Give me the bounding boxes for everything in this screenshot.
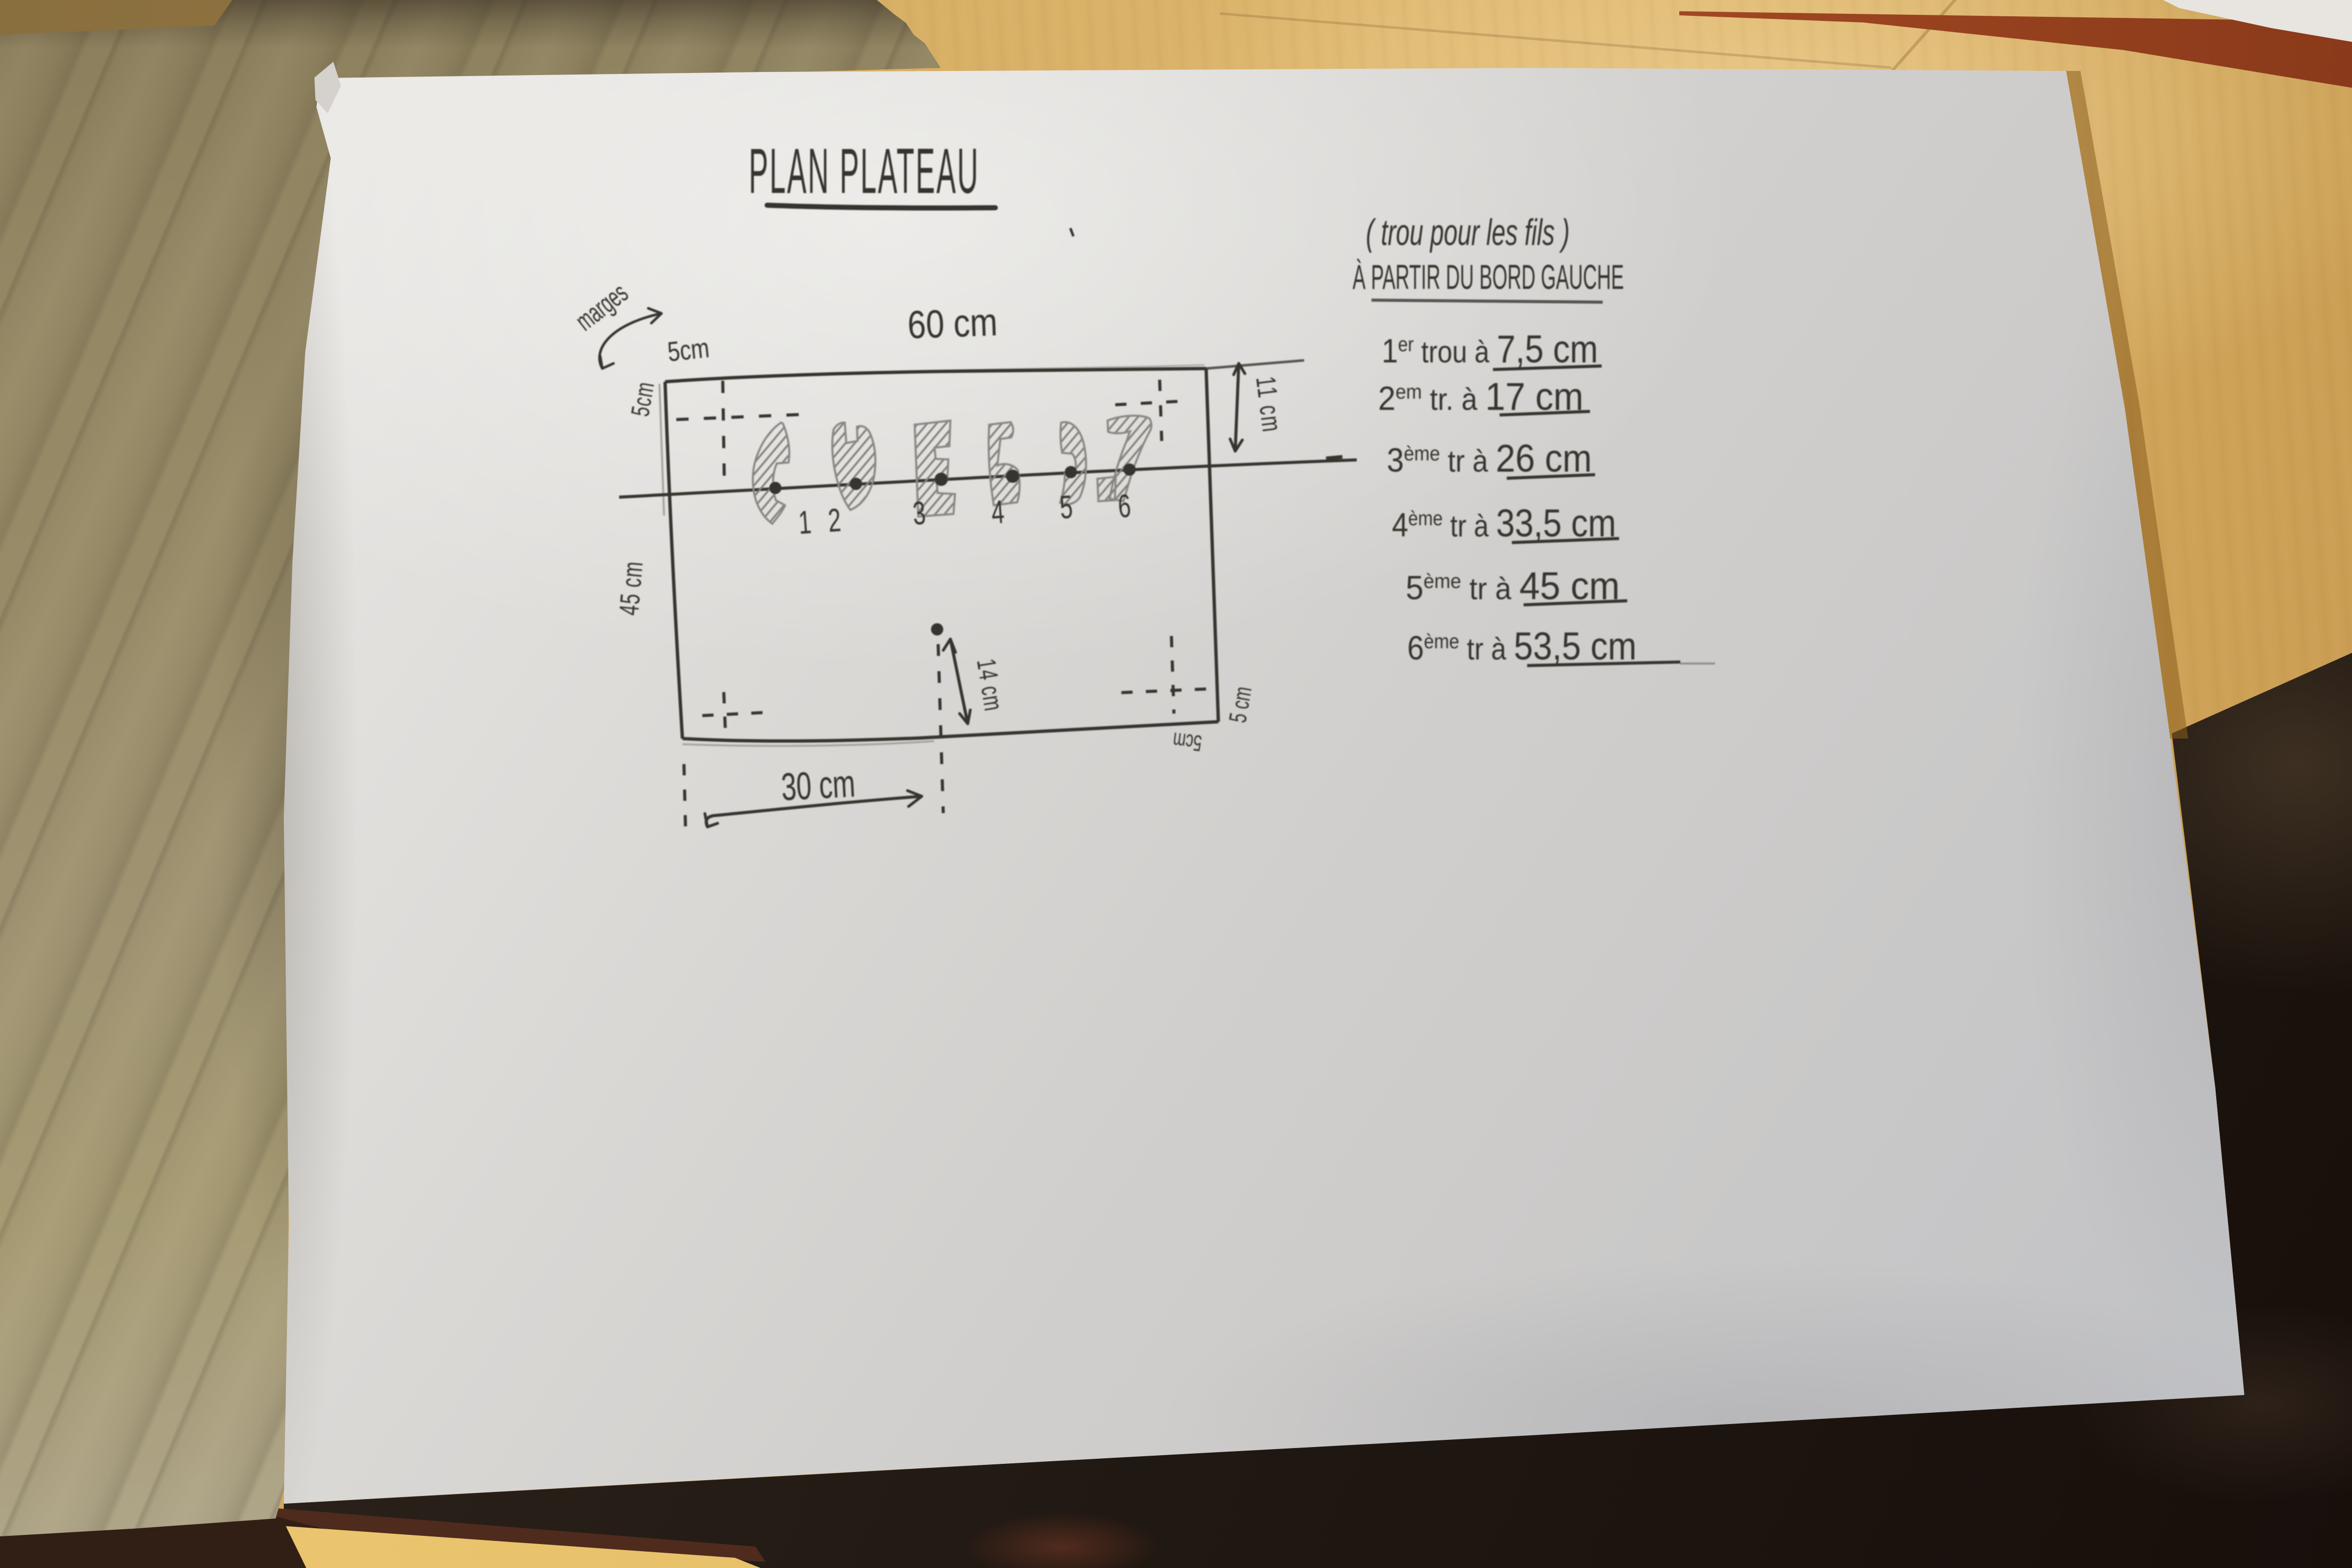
- svg-text:3: 3: [912, 494, 927, 531]
- svg-text:PLAN PLATEAU: PLAN PLATEAU: [749, 135, 979, 207]
- svg-text:5cm: 5cm: [666, 333, 710, 367]
- svg-text:2: 2: [827, 501, 842, 538]
- svg-text:( trou pour les fils ): ( trou pour les fils ): [1366, 212, 1570, 253]
- svg-text:4: 4: [990, 493, 1006, 530]
- svg-text:3ème tr à 26 cm: 3ème tr à 26 cm: [1387, 437, 1592, 480]
- svg-text:14 cm: 14 cm: [971, 657, 1008, 714]
- svg-text:11 cm: 11 cm: [1250, 375, 1288, 434]
- svg-text:5: 5: [1059, 488, 1074, 525]
- svg-text:1er trou à 7,5 cm: 1er trou à 7,5 cm: [1382, 328, 1598, 371]
- svg-text:1: 1: [797, 503, 813, 541]
- svg-text:45 cm: 45 cm: [613, 559, 649, 617]
- svg-text:5cm: 5cm: [626, 379, 660, 419]
- svg-text:5cm: 5cm: [1171, 728, 1203, 756]
- svg-text:5 cm: 5 cm: [1223, 684, 1257, 725]
- svg-text:6: 6: [1117, 487, 1132, 524]
- svg-text:À PARTIR DU BORD GAUCHE: À PARTIR DU BORD GAUCHE: [1353, 257, 1624, 297]
- svg-text:60 cm: 60 cm: [907, 301, 998, 348]
- svg-text:6ème tr à 53,5 cm: 6ème tr à 53,5 cm: [1407, 625, 1636, 668]
